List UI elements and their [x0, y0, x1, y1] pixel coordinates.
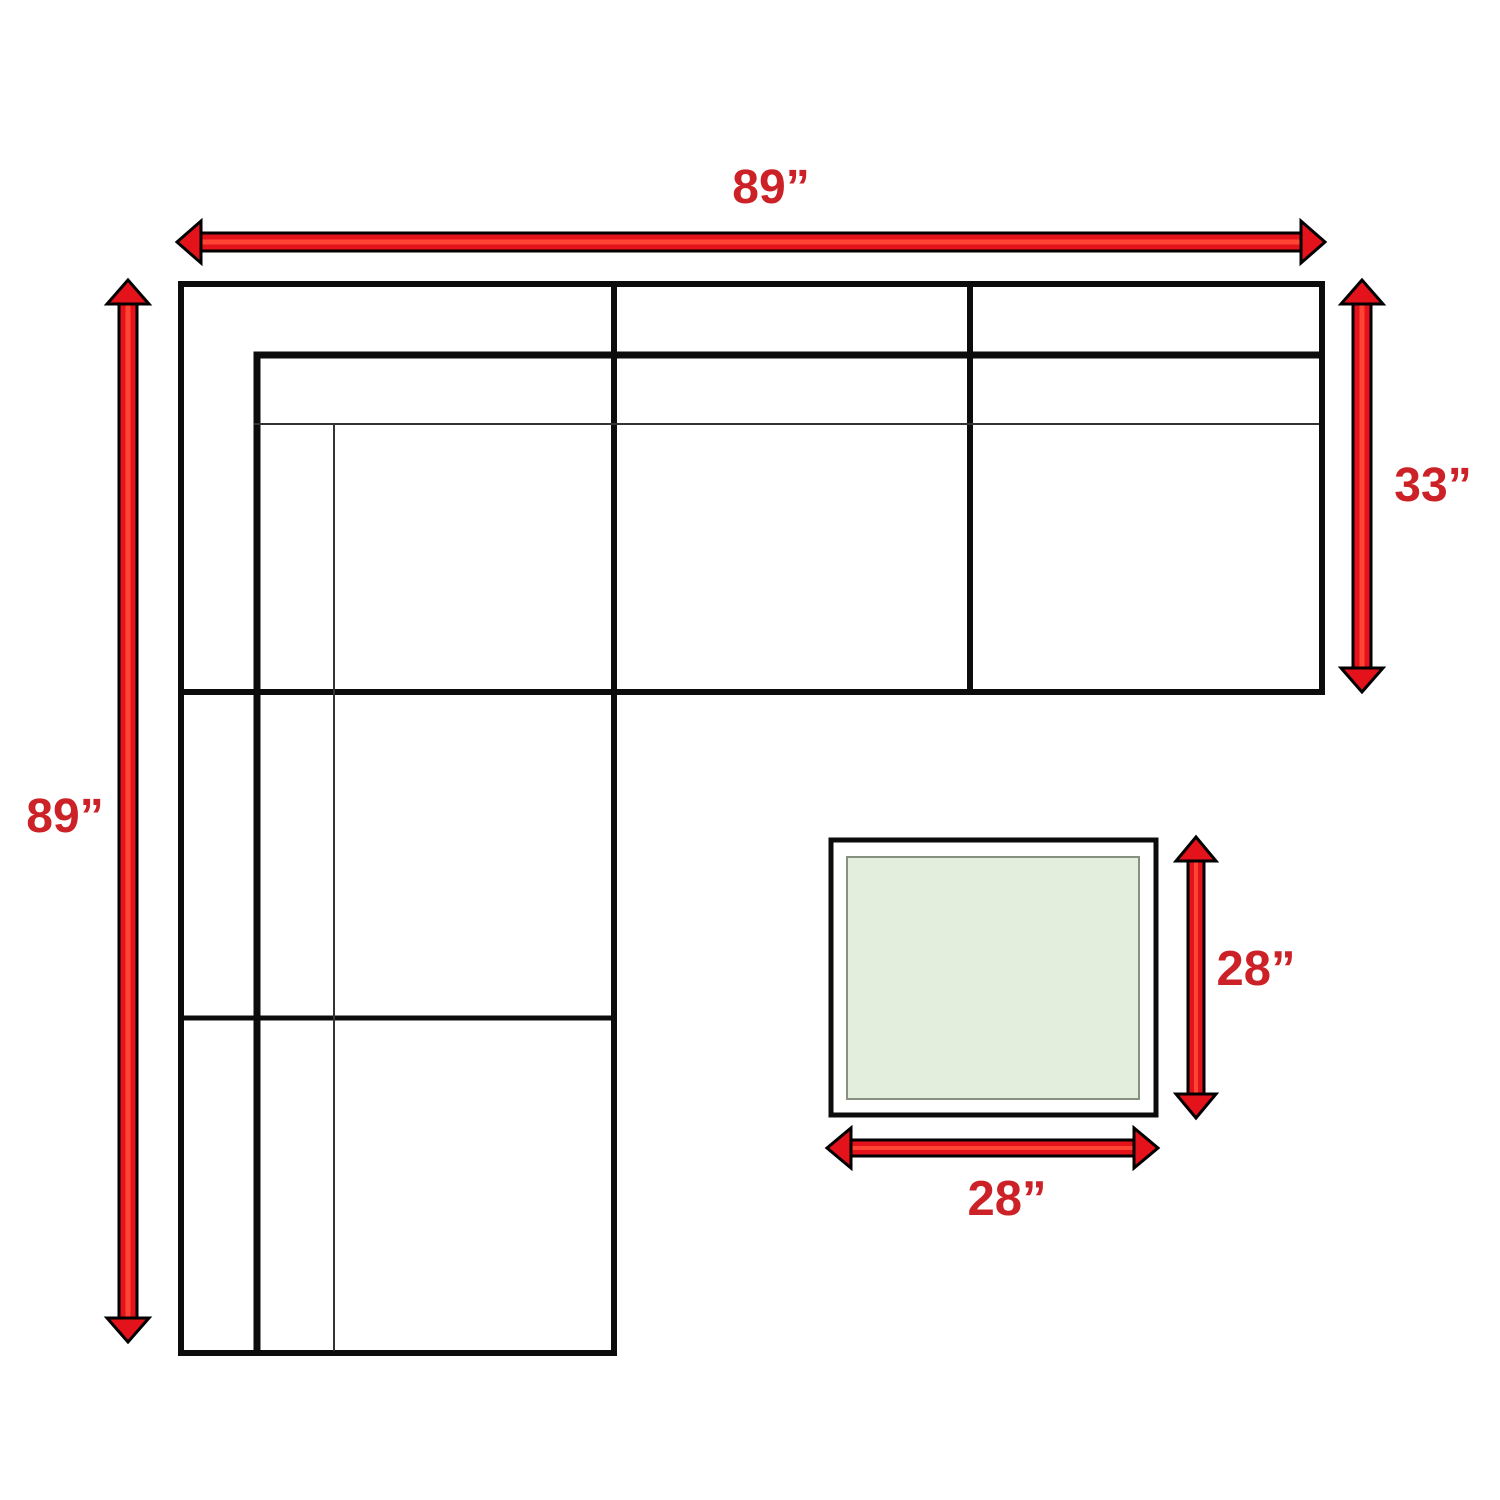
svg-text:33”: 33” [1394, 459, 1471, 512]
svg-text:28”: 28” [967, 1172, 1046, 1226]
svg-text:89”: 89” [732, 161, 809, 214]
svg-text:89”: 89” [26, 790, 103, 843]
svg-text:28”: 28” [1216, 942, 1295, 996]
